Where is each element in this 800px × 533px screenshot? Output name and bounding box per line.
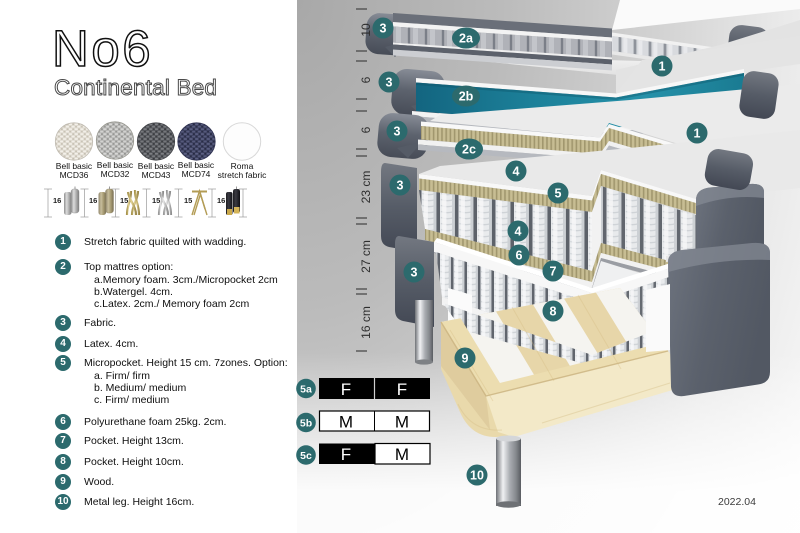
- svg-text:1: 1: [694, 127, 701, 141]
- svg-text:15: 15: [152, 196, 160, 205]
- svg-text:10: 10: [359, 23, 373, 37]
- svg-text:4: 4: [515, 225, 522, 239]
- svg-text:5: 5: [555, 187, 562, 201]
- svg-text:10: 10: [470, 469, 484, 483]
- svg-text:M: M: [395, 445, 409, 464]
- svg-text:23 cm: 23 cm: [359, 171, 373, 204]
- svg-text:15: 15: [184, 196, 192, 205]
- svg-text:8: 8: [550, 305, 557, 319]
- svg-text:3: 3: [380, 22, 387, 36]
- svg-text:16: 16: [53, 196, 61, 205]
- svg-text:3: 3: [411, 266, 418, 280]
- svg-text:5a: 5a: [300, 383, 312, 395]
- svg-text:6: 6: [359, 76, 373, 83]
- svg-text:F: F: [341, 445, 351, 464]
- svg-text:3: 3: [397, 179, 404, 193]
- svg-text:27 cm: 27 cm: [359, 240, 373, 273]
- svg-text:3: 3: [394, 125, 401, 139]
- svg-text:16 cm: 16 cm: [359, 306, 373, 339]
- svg-text:1: 1: [659, 60, 666, 74]
- svg-text:2a: 2a: [459, 32, 474, 46]
- svg-text:7: 7: [550, 265, 557, 279]
- svg-text:3: 3: [386, 76, 393, 90]
- svg-text:M: M: [339, 413, 353, 432]
- svg-text:6: 6: [359, 126, 373, 133]
- svg-text:5b: 5b: [300, 417, 312, 429]
- svg-text:16: 16: [217, 196, 225, 205]
- svg-text:F: F: [341, 380, 351, 399]
- svg-text:5c: 5c: [300, 450, 312, 462]
- svg-text:6: 6: [516, 249, 523, 263]
- svg-text:4: 4: [513, 165, 520, 179]
- svg-text:M: M: [395, 413, 409, 432]
- svg-text:2c: 2c: [462, 143, 476, 157]
- svg-text:15: 15: [120, 196, 128, 205]
- svg-text:F: F: [397, 380, 407, 399]
- svg-text:9: 9: [462, 352, 469, 366]
- svg-text:16: 16: [89, 196, 97, 205]
- svg-text:2b: 2b: [459, 90, 474, 104]
